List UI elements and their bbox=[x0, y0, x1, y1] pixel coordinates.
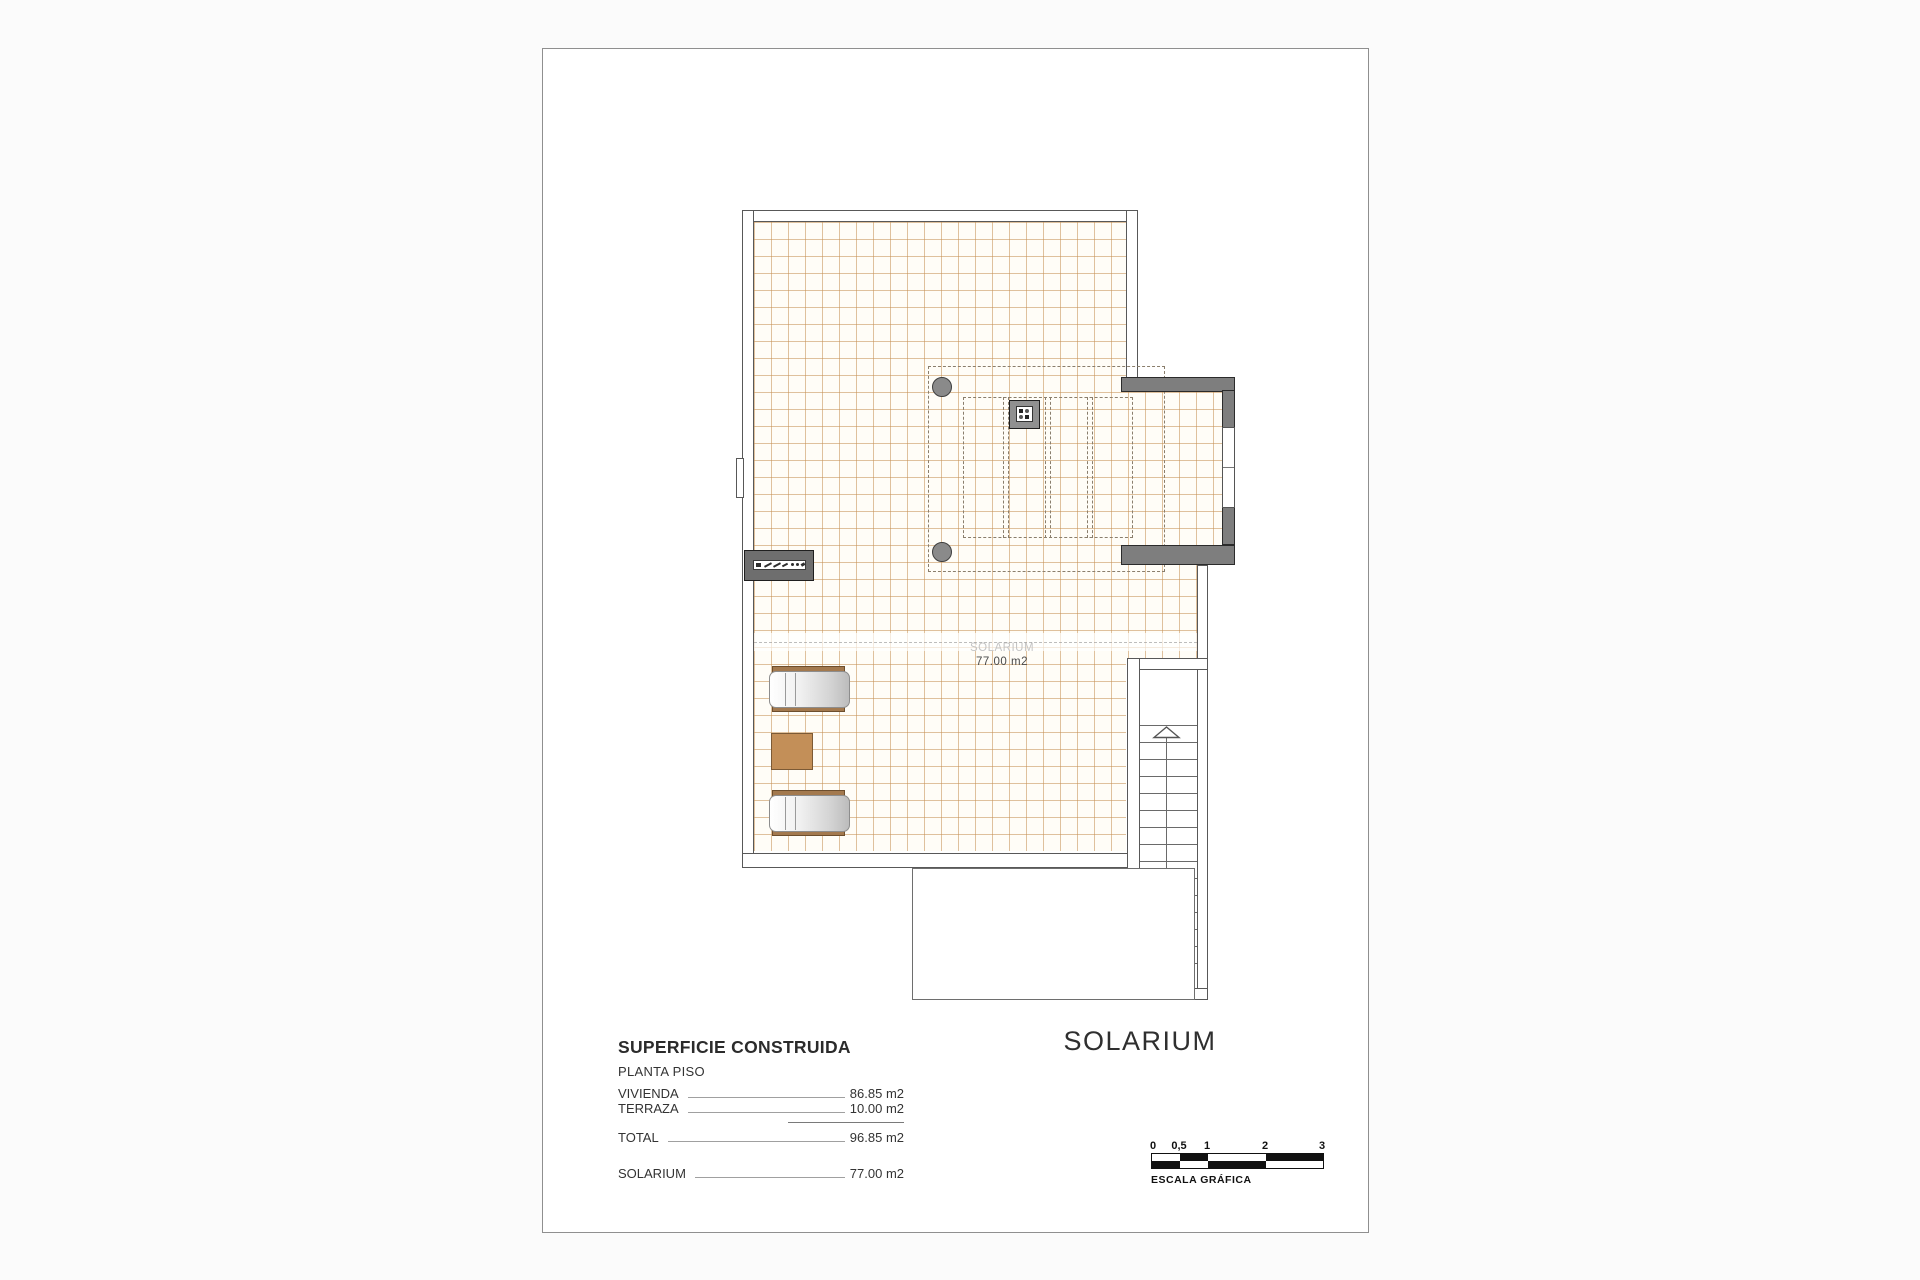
stairs-up-arrow-icon bbox=[1152, 726, 1181, 739]
watermark-band bbox=[754, 633, 1197, 651]
stair-wall-right bbox=[1197, 565, 1208, 998]
area-row-label: VIVIENDA bbox=[618, 1086, 679, 1101]
wall-bottom bbox=[742, 853, 1140, 868]
area-row-label: SOLARIUM bbox=[618, 1166, 686, 1181]
area-row-value: 77.00 m2 bbox=[850, 1166, 904, 1181]
area-row-value: 86.85 m2 bbox=[850, 1086, 904, 1101]
niche-wall-top bbox=[1121, 377, 1235, 392]
scale-bar-graphic bbox=[1151, 1153, 1324, 1169]
pergola-beam-dashed bbox=[1092, 397, 1093, 538]
area-row: VIVIENDA 86.85 m2 bbox=[618, 1086, 904, 1101]
area-row-value: 10.00 m2 bbox=[850, 1101, 904, 1116]
leader-line bbox=[668, 1140, 845, 1142]
area-row-label: TERRAZA bbox=[618, 1101, 679, 1116]
stair-tread bbox=[1140, 827, 1197, 828]
scale-bar-caption: ESCALA GRÁFICA bbox=[1151, 1174, 1252, 1186]
stair-tread bbox=[1140, 793, 1197, 794]
floor-plan-page: SOLARIUM 77.00 m2 SOLARIUM bbox=[0, 0, 1920, 1280]
pergola-beam-dashed bbox=[1003, 397, 1004, 538]
pergola-beam-dashed bbox=[1050, 397, 1051, 538]
room-label-area: 77.00 m2 bbox=[932, 655, 1072, 669]
scale-tick: 0,5 bbox=[1171, 1140, 1186, 1152]
leader-line bbox=[688, 1096, 845, 1098]
pergola-beam-dashed bbox=[1045, 397, 1046, 538]
area-table-title: SUPERFICIE CONSTRUIDA bbox=[618, 1037, 851, 1058]
area-row: TERRAZA 10.00 m2 bbox=[618, 1101, 904, 1116]
scale-tick: 2 bbox=[1262, 1140, 1268, 1152]
stair-tread bbox=[1140, 810, 1197, 811]
chimney-icon bbox=[1009, 400, 1040, 429]
niche-wall-right-upper bbox=[1222, 390, 1235, 428]
area-table-subtitle: PLANTA PISO bbox=[618, 1064, 705, 1079]
wall-left-joint bbox=[736, 458, 744, 498]
scale-tick: 3 bbox=[1319, 1140, 1325, 1152]
roof-vent-icon bbox=[744, 550, 814, 581]
area-row: SOLARIUM 77.00 m2 bbox=[618, 1166, 904, 1181]
column-icon bbox=[932, 542, 952, 562]
stair-tread bbox=[1140, 776, 1197, 777]
niche-window-icon bbox=[1222, 427, 1235, 508]
leader-line bbox=[695, 1176, 845, 1178]
stair-tread bbox=[1140, 742, 1197, 743]
pergola-inner-dashed bbox=[963, 397, 1133, 538]
terrace-outline bbox=[912, 868, 1195, 1000]
area-row-value: 96.85 m2 bbox=[850, 1130, 904, 1145]
stair-tread bbox=[1140, 844, 1197, 845]
niche-wall-bottom bbox=[1121, 545, 1235, 565]
stair-tread bbox=[1140, 759, 1197, 760]
wall-top bbox=[742, 210, 1138, 222]
area-row: TOTAL 96.85 m2 bbox=[618, 1130, 904, 1145]
subtotal-rule bbox=[788, 1122, 904, 1123]
wall-right-upper bbox=[1126, 210, 1138, 378]
niche-wall-right-lower bbox=[1222, 507, 1235, 545]
plan-title: SOLARIUM bbox=[1040, 1026, 1240, 1057]
area-row-label: TOTAL bbox=[618, 1130, 659, 1145]
wall-left bbox=[742, 210, 754, 868]
scale-tick: 1 bbox=[1204, 1140, 1210, 1152]
leader-line bbox=[688, 1111, 845, 1113]
scale-tick: 0 bbox=[1150, 1140, 1156, 1152]
pergola-beam-dashed bbox=[1087, 397, 1088, 538]
column-icon bbox=[932, 377, 952, 397]
stair-tread bbox=[1140, 861, 1197, 862]
side-table bbox=[771, 733, 813, 770]
